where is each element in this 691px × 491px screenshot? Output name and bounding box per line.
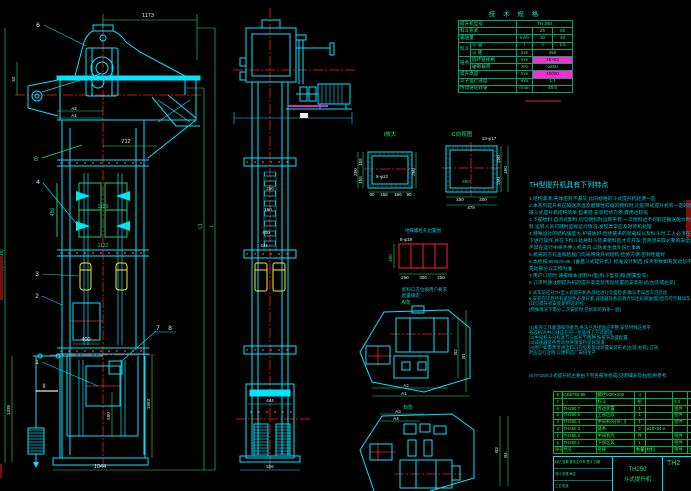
bom-cell [688, 412, 691, 419]
spec-cell: 1.1 [533, 78, 573, 85]
bom-cell: 料斗 [596, 398, 634, 405]
bom-cell: 9.0 [673, 398, 688, 405]
spec-cell: 3 [533, 42, 553, 49]
detail-c-dim-250a: 250 [496, 155, 501, 163]
revision-row-3: 工艺 批准 [554, 481, 612, 491]
cad-drawing-canvas: 1173 712 400 1044 A2 A1 1553 550 1335 52… [0, 0, 691, 491]
note-line: 时应自行注明,以便制造厂安排生产 [529, 351, 691, 356]
spec-cell: 斗 容 [471, 42, 517, 49]
bom-cell: 传动装置 [596, 405, 634, 412]
detail-i-hole: 8-φ12 [376, 174, 388, 179]
dim-chain-400: 400 [262, 230, 270, 235]
spec-cell: Zh [533, 28, 553, 35]
dim-l1: L1 [198, 223, 204, 229]
bom-cell: TH250.7 [562, 405, 596, 412]
anchor-hole: 8-φ18 [400, 237, 412, 242]
detail-c-hole: 13-φ17 [482, 136, 497, 141]
detail-c-dim-250b: 250 [496, 177, 501, 185]
spec-row: 破断载荷KN≥250 [459, 64, 573, 71]
part-label-1: 1 [35, 359, 39, 366]
bom-cell: 中间机壳(带门) [596, 419, 634, 426]
bom-cell: TH250.6 [562, 412, 596, 419]
note-line: 严禁在运行中将手伸入机壳内,以防发生意外伤亡事故 [529, 245, 691, 252]
anchor-note-2: 配置确定 [402, 292, 420, 299]
bucket-front [80, 263, 127, 290]
bom-cell: 组件 [673, 440, 688, 447]
detail-c-texts: C向视图 13-φ17 600 250 250 450 250 200 479 [452, 130, 508, 210]
bom-row: 5TH250.6上部区段1组件 [554, 412, 691, 419]
spec-cell: ≥250 [533, 64, 573, 71]
detail-c-inner: 600 [462, 179, 470, 184]
top-view-b-texts: B向 A3 A4 B3 B4 [393, 403, 508, 458]
bom-cell: 材料 [645, 447, 673, 454]
bom-row: 8GB5782-86螺栓M20×2004 [554, 392, 691, 399]
dim-a1: A1 [71, 113, 77, 118]
features-title: TH型提升机具有下列特点 [529, 180, 691, 190]
dim-1132: 1132 [98, 243, 109, 249]
bolt-rows [60, 162, 294, 412]
bom-cell: 1 [634, 440, 645, 447]
detail-i-dim-360: 360 [411, 168, 416, 176]
bom-cell: 单件 [673, 447, 688, 454]
spec-cell: 1.6 [553, 42, 573, 49]
bom-cell [645, 412, 673, 419]
drawing-number: TH2 [663, 457, 691, 491]
bom-cell [688, 419, 691, 426]
bom-cell [645, 392, 673, 399]
dim-chain-250: 250 [266, 186, 274, 191]
bom-cell [645, 419, 673, 426]
bom-cell [673, 426, 688, 433]
anchor-plan-title: 地脚螺栓孔位置图 [405, 227, 441, 234]
spec-cell: mm [517, 71, 533, 78]
part-label-3: 3 [35, 271, 39, 278]
bom-row: 3TH250.3链条2φ18×64-A [554, 426, 691, 433]
bom-cell: 螺栓M20×200 [596, 392, 634, 399]
revision-row-1: 标记 处数 更改文件号 签字 日期 [554, 457, 612, 469]
dim-boot-top: 444 [266, 398, 274, 403]
bom-cell [688, 426, 691, 433]
bom-cell: 4 [554, 419, 563, 426]
front-view-texts: 1173 712 400 1044 A2 A1 1553 550 1335 52… [6, 13, 172, 470]
spec-cell: 40000 [533, 71, 573, 78]
inspection-door [42, 145, 127, 237]
dim-1335: 1335 [6, 404, 11, 415]
bom-cell [645, 433, 673, 440]
note-line: 5.机壳的方孔盖和检视门均采用快开式结构,检修方便,密封性能好 [529, 252, 691, 259]
note-line: 8.订货时请注明提升机的提升高度及传动装置的安装形式(左装或右装) [529, 280, 691, 287]
note-line: (特殊情况下需分二次安装时,已拆卸的链条一副) [529, 307, 691, 313]
spec-cell: 斗子运行速度 [459, 78, 517, 85]
front-view-green-texts: 1130 1132 450 H(总高4946) L1 L B [0, 157, 215, 275]
spec-row: 传动链轮转速r/min48.5 [459, 85, 573, 92]
bom-cell: 1 [634, 405, 645, 412]
spec-table: 提升机型号TH 250料斗形式ZhSh输送量m³/h3048料斗斗 容l31.6… [458, 20, 573, 93]
dim-b4: B4 [503, 452, 508, 458]
bom-cell [688, 398, 691, 405]
side-view [234, 20, 352, 470]
features-notes-block: TH型提升机具有下列特点 1.结构紧凑,壳体密封不漏灰,比同规格的斗式提升机轻便… [529, 180, 691, 379]
detail-i-dim-155a: 155 [358, 158, 363, 166]
dim-550: 550 [106, 412, 111, 420]
bom-cell: 名称 [596, 447, 634, 454]
white-dim-block [300, 113, 308, 118]
bom-cell: 2 [634, 426, 645, 433]
features-final-note: (5)TH250斗式提升机主要由下列各部件组成(见明细表及右图)供参考. [529, 373, 691, 379]
spec-cell [517, 28, 533, 35]
dim-1130: 1130 [98, 204, 109, 210]
section-mark: II [42, 384, 46, 390]
spec-cell: 斗 距 [471, 49, 517, 56]
front-view [28, 25, 200, 468]
spec-row: 提升高度mm40000 [459, 71, 573, 78]
part-label-4: 4 [36, 179, 40, 186]
spec-cell: m³/h [517, 35, 533, 42]
detail-i-dim-350: 350 [353, 168, 358, 176]
detail-i-dim-156b: 156 [394, 192, 402, 197]
revision-row-2: 设计 校核 审定 [554, 469, 612, 481]
note-line: 链斗式提升机结构简单,自重轻,安装检修方便,费用也较低 [529, 210, 691, 217]
spec-cell: TH 250 [517, 21, 573, 28]
bom-cell [645, 440, 673, 447]
spec-cell: 30 [533, 35, 553, 42]
short-red-crosses [70, 32, 396, 460]
dim-chain-160: 160 [264, 207, 272, 212]
spec-cell: 18×64 [533, 56, 573, 63]
note-line: 变动部分以实物为准 [529, 266, 691, 273]
bom-cell: 4 [634, 392, 645, 399]
note-line: 下进行操作,并在下料斗处将料斗装满物料后才可开车;否则须采取必要的安全防护措施, [529, 238, 691, 245]
anchor-note-1: 卸料口方位按用户要求 [402, 286, 447, 293]
spec-row: 料斗斗 容l31.6 [459, 42, 573, 49]
spec-cell: 输送量 [459, 35, 517, 42]
anchor-dim-450: 450 [388, 254, 393, 262]
dim-1553: 1553 [146, 398, 151, 409]
bom-cell: 序号 [554, 447, 563, 454]
anchor-dim-250a: 250 [401, 275, 409, 280]
title-block-revision-grid: 标记 处数 更改文件号 签字 日期 设计 校核 审定 工艺 批准 [554, 457, 613, 491]
dim-a4: A4 [393, 416, 399, 421]
spec-row: 链条圆环链规格mm18×64 [459, 56, 573, 63]
spec-cell: mm [517, 56, 533, 63]
detail-c-dim-450: 450 [503, 166, 508, 174]
note-line: 4.特殊设计的结构强度大,护链板好;检修链条的装载段以及料斗时,工人必须在停机的… [529, 231, 691, 238]
detail-i-dim-156a: 156 [380, 192, 388, 197]
bom-cell [688, 440, 691, 447]
detail-i-view [358, 152, 416, 192]
part-label-6: 6 [36, 22, 40, 29]
bom-cell: 数量 [634, 447, 645, 454]
note-line: 6.本机按JB3926-85《垂直斗式提升机》标准设计制造,技术参数如有变动恕不… [529, 259, 691, 266]
bom-cell: 总计 [688, 447, 691, 454]
bom-cell: 6 [554, 405, 563, 412]
anchor-dim-300: 300 [419, 275, 427, 280]
bom-cell: 代号 [562, 447, 596, 454]
detail-c-dim-b2: 200 [479, 197, 487, 202]
bom-row: 4TH250.4中间机壳(带门)1组件 [554, 419, 691, 426]
spec-cell: 链条 [459, 56, 471, 70]
bom-row: 2TH250.2中间机壳件组件 [554, 433, 691, 440]
title-block-name-cell: TH250 斗式提升机 [613, 457, 663, 491]
note-line: 1.结构紧凑,壳体密封不漏灰,比同规格的斗式提升机轻便一些 [529, 196, 691, 203]
part-label-7: 7 [156, 325, 160, 332]
spec-cell: 450 [533, 49, 573, 56]
spec-row: 斗 距mm450 [459, 49, 573, 56]
detail-c-title: C向视图 [452, 130, 473, 138]
bom-cell: 组件 [673, 419, 688, 426]
bom-row: 7料斗组9.0 [554, 398, 691, 405]
dim-1173: 1173 [142, 13, 154, 19]
detail-i-title: I放大 [384, 130, 397, 138]
bom-cell [645, 405, 673, 412]
bom-cell: 件 [634, 433, 645, 440]
anchor-bolt-plan: 地脚螺栓孔位置图 8-φ18 450 250 300 250 卸料口方位按用户要… [388, 227, 447, 299]
detail-i-texts: I放大 8-φ12 350 155 155 360 90 156 156 90 [353, 130, 416, 197]
bom-cell: TH250.1 [562, 440, 596, 447]
bom-cell: 链条 [596, 426, 634, 433]
spec-cell: 48 [553, 35, 573, 42]
dim-450-door: 450 [50, 208, 56, 217]
bom-cell: 1 [554, 440, 563, 447]
dim-1044: 1044 [94, 464, 106, 470]
view-label-b: B [34, 157, 38, 163]
bom-cell: 组件 [673, 412, 688, 419]
bom-cell [688, 392, 691, 399]
spec-cell: 圆环链规格 [471, 56, 517, 63]
spec-cell: 48.5 [533, 85, 573, 92]
spec-cell: 料斗 [459, 42, 471, 56]
bom-cell: 下部区段 [596, 440, 634, 447]
top-view-b [360, 414, 508, 491]
bom-cell: 中间机壳 [596, 433, 634, 440]
bom-cell: 组件 [673, 433, 688, 440]
features-notes: 5.试车前应对TH型斗式提升机各部位进行全面检查,确认无误后方可启动6.安装完毕… [529, 290, 691, 312]
dim-l: L [209, 224, 215, 227]
product-name: 斗式提升机 [624, 475, 652, 483]
bom-cell [673, 392, 688, 399]
spec-cell: l [517, 42, 533, 49]
dim-a1-top: A1 [401, 391, 407, 396]
bom-cell: 1 [634, 419, 645, 426]
dim-chain-444: 444 [260, 243, 268, 248]
spec-row: 料斗形式ZhSh [459, 28, 573, 35]
spec-cell: 提升高度 [459, 71, 517, 78]
spec-row: 提升机型号TH 250 [459, 21, 573, 28]
bom-cell: 5 [554, 412, 563, 419]
title-block: 标记 处数 更改文件号 签字 日期 设计 校核 审定 工艺 批准 TH250 斗… [553, 456, 691, 491]
spec-cell: mm [517, 49, 533, 56]
dim-boot-base: 556 [266, 464, 274, 469]
view-a-title: A向 [401, 298, 410, 306]
detail-i-dim-90b: 90 [406, 192, 412, 197]
part-label-8: 8 [168, 325, 172, 332]
bom-cell: φ18×64-A [645, 426, 673, 433]
bom-cell [562, 398, 596, 405]
bom-cell: 2 [554, 433, 563, 440]
bom-cell: 8 [554, 392, 563, 399]
bom-cell: 3 [554, 426, 563, 433]
dim-712: 712 [121, 139, 130, 145]
dim-b2: B2 [453, 349, 458, 355]
note-line: 3.下部给料,自流式卸料,均匀喂料时运转平稳;一次给料达不到额定输送能力时,可分… [529, 217, 691, 224]
detail-c-dim-total: 479 [467, 205, 475, 210]
bom-cell: 组 [634, 398, 645, 405]
bom-cell [688, 405, 691, 412]
technical-spec-table: 技 术 规 格 提升机型号TH 250料斗形式ZhSh输送量m³/h3048料斗… [458, 8, 572, 93]
dim-400: 400 [81, 337, 90, 343]
bom-cell: TH250.2 [562, 433, 596, 440]
spec-cell: Sh [553, 28, 573, 35]
bom-table: 8GB5782-86螺栓M20×20047料斗组9.06TH250.7传动装置1… [553, 391, 691, 454]
detail-i-dim-90a: 90 [369, 192, 375, 197]
note-line: 料,运转人员可随时监视运行情况,发现异常应及时停机处理 [529, 224, 691, 231]
dim-a2-top: A2 [403, 383, 409, 388]
bom-row: 6TH250.7传动装置1组件 [554, 405, 691, 412]
features-notes2: (1)机壳工作面须保持垂直,各法兰连接面应平整,安装时找正找平, 各段机壳中心线… [529, 326, 691, 355]
spec-cell: m/s [517, 78, 533, 85]
note-line: 7.用户订货时,请按样本注明TH型(料斗型号)和(配置型号) [529, 273, 691, 280]
note-line: 5.试车前应对TH型斗式提升机各部位进行全面检查,确认无误后方可启动 [529, 290, 691, 296]
anchor-dim-250b: 250 [437, 275, 445, 280]
bom-cell: 上部区段 [596, 412, 634, 419]
spec-cell: r/min [517, 85, 533, 92]
spec-cell: 料斗形式 [459, 28, 517, 35]
dim-b3: B3 [494, 447, 499, 453]
spec-cell: 传动链轮转速 [459, 85, 517, 92]
features-lines: 1.结构紧凑,壳体密封不漏灰,比同规格的斗式提升机轻便一些2.本系列提升机在输送… [529, 196, 691, 287]
bom-cell: 组件 [673, 405, 688, 412]
bom-header-row: 序号代号名称数量材料单件总计 [554, 447, 691, 454]
bom-cell [645, 398, 673, 405]
model-number: TH250 [628, 467, 646, 473]
spec-cell: KN [517, 64, 533, 71]
note-line: 2.本系列提升机在输送高温及磨琢性较强的物料时,比胶带式提升机有一定的优越性,并… [529, 203, 691, 210]
bom-cell: 7 [554, 398, 563, 405]
bom-parts-list: 8GB5782-86螺栓M20×20047料斗组9.06TH250.7传动装置1… [553, 391, 691, 454]
detail-c-dim-b1: 250 [456, 197, 464, 202]
spec-row: 斗子运行速度m/s1.1 [459, 78, 573, 85]
spec-row: 输送量m³/h3048 [459, 35, 573, 42]
bom-cell: 1 [634, 412, 645, 419]
bom-cell [688, 433, 691, 440]
detail-i-dim-155b: 155 [358, 176, 363, 184]
spec-cell: 提升机型号 [459, 21, 517, 28]
dim-a2: A2 [71, 106, 77, 111]
bom-cell: GB5782-86 [562, 392, 596, 399]
bom-cell: TH250.4 [562, 419, 596, 426]
spec-cell: 破断载荷 [471, 64, 517, 71]
spec-table-title: 技 术 规 格 [458, 8, 572, 18]
view-b-title: B向 [403, 403, 412, 411]
bom-row: 1TH250.1下部区段1组件 [554, 440, 691, 447]
dim-52: 52 [11, 76, 16, 82]
dim-b1: B1 [461, 353, 466, 359]
dim-a3: A3 [395, 409, 401, 414]
bom-cell: TH250.3 [562, 426, 596, 433]
part-label-2: 2 [35, 293, 39, 300]
